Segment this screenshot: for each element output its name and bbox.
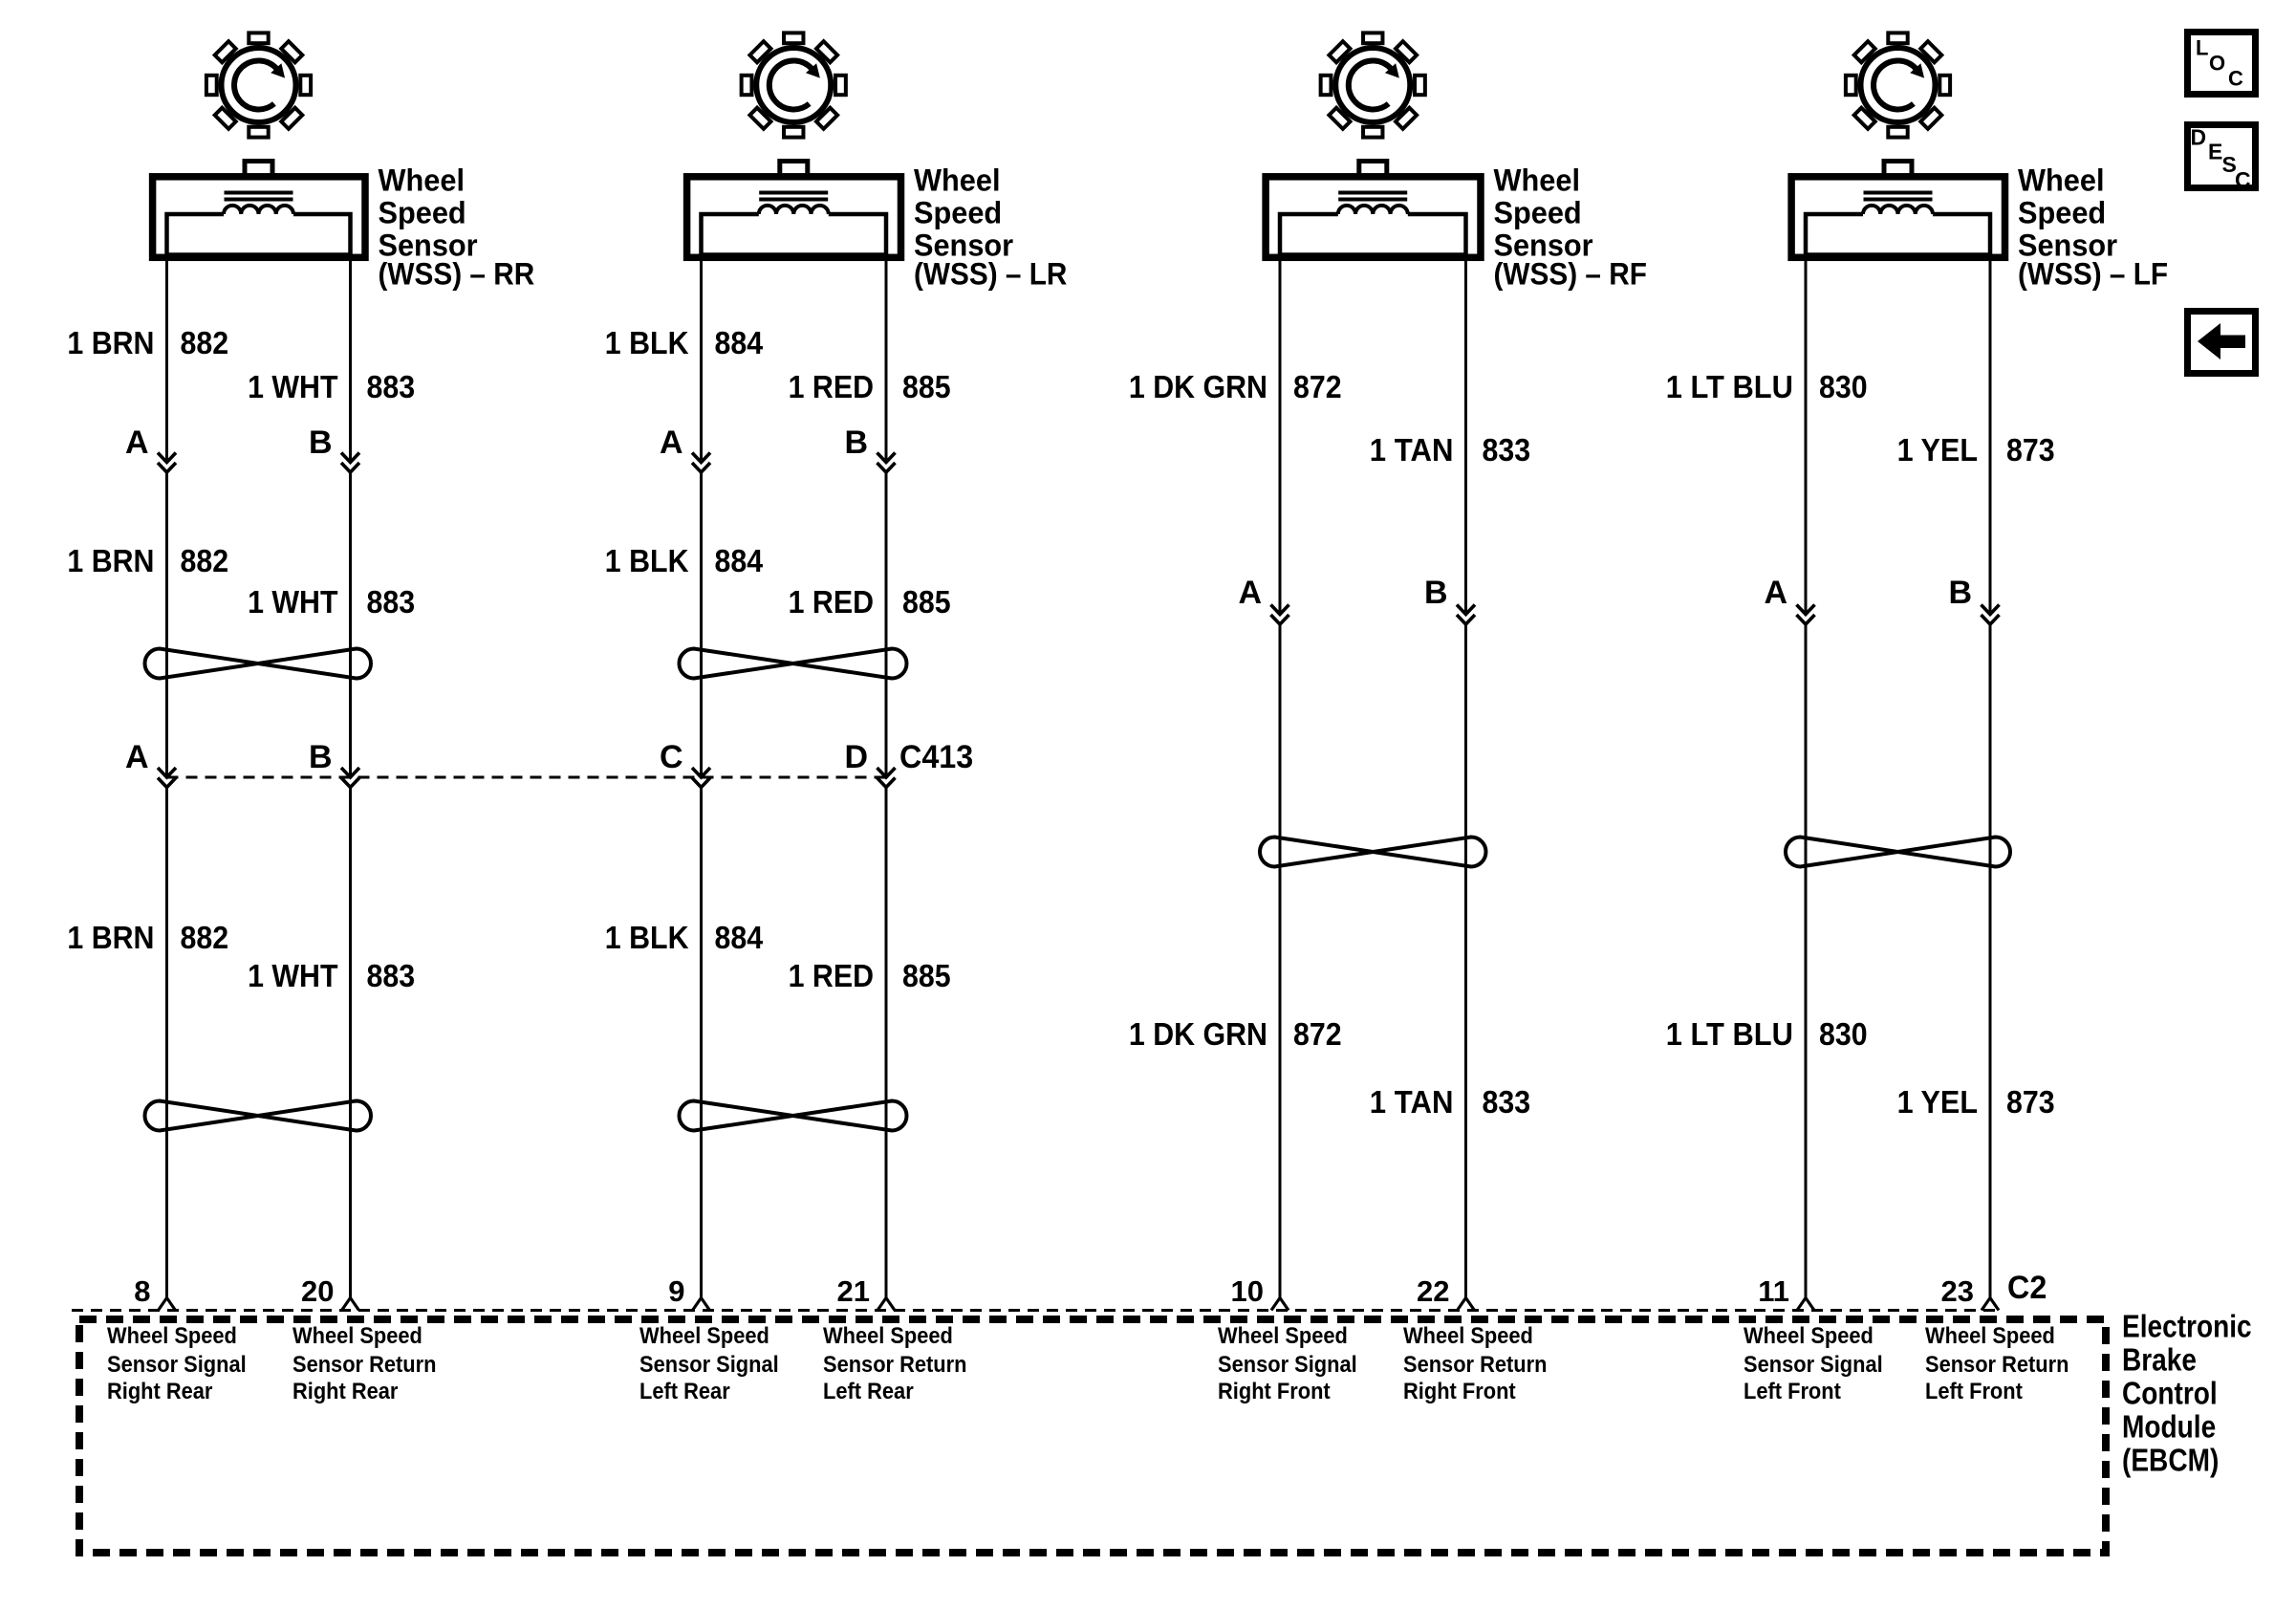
svg-text:D: D	[844, 739, 868, 775]
svg-text:L: L	[2196, 36, 2208, 60]
svg-text:A: A	[125, 739, 149, 775]
svg-text:C: C	[660, 739, 683, 775]
svg-text:Wheel Speed: Wheel Speed	[1925, 1323, 2055, 1349]
svg-text:O: O	[2209, 52, 2225, 76]
svg-text:1 RED: 1 RED	[789, 584, 874, 620]
svg-text:10: 10	[1231, 1274, 1264, 1308]
svg-text:8: 8	[134, 1274, 150, 1308]
svg-text:884: 884	[715, 543, 764, 578]
svg-text:883: 883	[367, 584, 416, 620]
svg-text:Speed: Speed	[2018, 195, 2106, 229]
svg-text:(WSS) – RF: (WSS) – RF	[1494, 256, 1647, 291]
svg-text:22: 22	[1417, 1274, 1449, 1308]
svg-text:882: 882	[181, 325, 229, 360]
svg-text:Wheel Speed: Wheel Speed	[639, 1323, 769, 1349]
svg-text:20: 20	[301, 1274, 334, 1308]
svg-text:Electronic: Electronic	[2122, 1308, 2252, 1343]
svg-text:Sensor Signal: Sensor Signal	[107, 1352, 247, 1378]
svg-text:1 YEL: 1 YEL	[1897, 1084, 1978, 1120]
svg-text:Speed: Speed	[914, 195, 1002, 229]
svg-text:833: 833	[1483, 1084, 1531, 1120]
svg-text:Left Front: Left Front	[1925, 1379, 2023, 1404]
svg-text:Wheel: Wheel	[1494, 163, 1581, 197]
svg-text:Wheel Speed: Wheel Speed	[107, 1323, 237, 1349]
svg-text:Right Front: Right Front	[1218, 1379, 1331, 1404]
svg-text:1 BRN: 1 BRN	[67, 920, 154, 955]
svg-text:B: B	[309, 424, 333, 461]
svg-text:1 BLK: 1 BLK	[605, 543, 689, 578]
svg-text:1 WHT: 1 WHT	[248, 584, 337, 620]
svg-text:872: 872	[1293, 1016, 1342, 1052]
svg-text:1 LT BLU: 1 LT BLU	[1666, 1016, 1793, 1052]
svg-text:A: A	[660, 424, 683, 461]
svg-text:23: 23	[1941, 1274, 1974, 1308]
svg-text:1 WHT: 1 WHT	[248, 958, 337, 993]
svg-text:Right Front: Right Front	[1403, 1379, 1516, 1404]
svg-text:1 LT BLU: 1 LT BLU	[1666, 369, 1793, 404]
svg-text:Speed: Speed	[1494, 195, 1582, 229]
svg-text:1 DK GRN: 1 DK GRN	[1129, 369, 1267, 404]
svg-text:884: 884	[715, 920, 764, 955]
svg-text:884: 884	[715, 325, 764, 360]
svg-text:873: 873	[2006, 1084, 2055, 1120]
svg-text:1 BLK: 1 BLK	[605, 920, 689, 955]
svg-text:883: 883	[367, 958, 416, 993]
svg-text:885: 885	[902, 958, 951, 993]
svg-text:Right Rear: Right Rear	[292, 1379, 398, 1404]
svg-text:B: B	[1948, 575, 1972, 611]
svg-text:1 RED: 1 RED	[789, 369, 874, 404]
svg-text:1 DK GRN: 1 DK GRN	[1129, 1016, 1267, 1052]
svg-text:883: 883	[367, 369, 416, 404]
svg-text:Control: Control	[2122, 1375, 2218, 1410]
svg-text:Sensor Return: Sensor Return	[823, 1352, 967, 1378]
svg-text:830: 830	[1819, 369, 1868, 404]
svg-text:873: 873	[2006, 432, 2055, 468]
svg-text:Wheel Speed: Wheel Speed	[292, 1323, 422, 1349]
svg-text:Sensor Signal: Sensor Signal	[639, 1352, 779, 1378]
svg-text:1 BLK: 1 BLK	[605, 325, 689, 360]
svg-text:Speed: Speed	[379, 195, 466, 229]
svg-text:A: A	[1764, 575, 1787, 611]
svg-text:1 BRN: 1 BRN	[67, 325, 154, 360]
svg-text:Wheel Speed: Wheel Speed	[1218, 1323, 1348, 1349]
svg-text:C: C	[2235, 167, 2251, 192]
svg-text:830: 830	[1819, 1016, 1868, 1052]
svg-text:Sensor Signal: Sensor Signal	[1744, 1352, 1883, 1378]
svg-text:1 TAN: 1 TAN	[1370, 432, 1454, 468]
svg-text:Module: Module	[2122, 1408, 2216, 1444]
svg-text:1 WHT: 1 WHT	[248, 369, 337, 404]
svg-text:Sensor Return: Sensor Return	[1925, 1352, 2069, 1378]
svg-text:Wheel Speed: Wheel Speed	[1403, 1323, 1533, 1349]
svg-text:(WSS) – RR: (WSS) – RR	[379, 256, 535, 291]
svg-text:D: D	[2191, 125, 2207, 150]
svg-text:E: E	[2208, 140, 2222, 164]
svg-text:1 YEL: 1 YEL	[1897, 432, 1978, 468]
svg-text:A: A	[125, 424, 149, 461]
svg-text:Left Rear: Left Rear	[823, 1379, 914, 1404]
svg-text:C2: C2	[2007, 1270, 2047, 1306]
svg-text:B: B	[309, 739, 333, 775]
svg-text:Sensor Signal: Sensor Signal	[1218, 1352, 1357, 1378]
svg-text:1 BRN: 1 BRN	[67, 543, 154, 578]
svg-text:Wheel Speed: Wheel Speed	[1744, 1323, 1874, 1349]
svg-text:11: 11	[1758, 1274, 1789, 1308]
svg-text:Brake: Brake	[2122, 1341, 2197, 1377]
svg-text:B: B	[1424, 575, 1448, 611]
svg-text:9: 9	[668, 1274, 684, 1308]
svg-text:1 TAN: 1 TAN	[1370, 1084, 1454, 1120]
svg-text:Wheel: Wheel	[2018, 163, 2105, 197]
svg-text:Sensor Return: Sensor Return	[292, 1352, 437, 1378]
svg-text:885: 885	[902, 584, 951, 620]
svg-text:Wheel: Wheel	[379, 163, 466, 197]
svg-text:C413: C413	[899, 739, 973, 775]
svg-text:B: B	[844, 424, 868, 461]
svg-text:872: 872	[1293, 369, 1342, 404]
svg-text:(WSS) – LF: (WSS) – LF	[2018, 256, 2168, 291]
svg-text:21: 21	[837, 1274, 870, 1308]
svg-text:Left Front: Left Front	[1744, 1379, 1841, 1404]
svg-text:833: 833	[1483, 432, 1531, 468]
svg-text:(WSS) – LR: (WSS) – LR	[914, 256, 1067, 291]
svg-text:Left Rear: Left Rear	[639, 1379, 730, 1404]
svg-text:1 RED: 1 RED	[789, 958, 874, 993]
svg-text:Sensor Return: Sensor Return	[1403, 1352, 1548, 1378]
svg-text:Right Rear: Right Rear	[107, 1379, 212, 1404]
svg-text:(EBCM): (EBCM)	[2122, 1442, 2219, 1477]
svg-text:C: C	[2228, 67, 2243, 91]
svg-text:Wheel: Wheel	[914, 163, 1001, 197]
svg-text:A: A	[1238, 575, 1262, 611]
svg-text:885: 885	[902, 369, 951, 404]
svg-text:Wheel Speed: Wheel Speed	[823, 1323, 953, 1349]
svg-text:882: 882	[181, 543, 229, 578]
svg-text:882: 882	[181, 920, 229, 955]
